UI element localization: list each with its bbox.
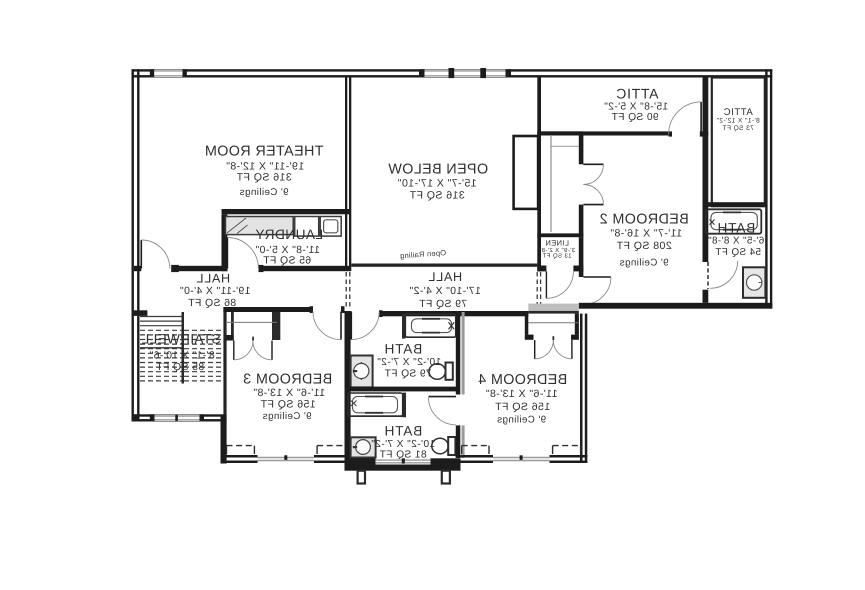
svg-text:9' Ceilings: 9' Ceilings bbox=[619, 258, 668, 269]
svg-text:13 SQ FT: 13 SQ FT bbox=[542, 253, 571, 260]
svg-text:HALL: HALL bbox=[428, 270, 462, 284]
svg-text:BEDROOM 3: BEDROOM 3 bbox=[243, 371, 332, 387]
svg-text:BATH: BATH bbox=[384, 424, 422, 439]
svg-text:54 SQ FT: 54 SQ FT bbox=[715, 247, 761, 258]
svg-text:THEATER ROOM: THEATER ROOM bbox=[205, 144, 324, 160]
svg-text:11'-6" X 13'-8": 11'-6" X 13'-8" bbox=[485, 388, 557, 400]
svg-text:OPEN BELOW: OPEN BELOW bbox=[388, 161, 488, 177]
svg-text:BATH: BATH bbox=[717, 220, 755, 235]
svg-text:ATTIC: ATTIC bbox=[616, 86, 659, 102]
svg-text:79 SQ FT: 79 SQ FT bbox=[384, 369, 431, 380]
svg-text:90 SQ FT: 90 SQ FT bbox=[611, 112, 658, 123]
svg-text:8'-1" X 10'-6": 8'-1" X 10'-6" bbox=[149, 350, 214, 361]
svg-text:156 SQ FT: 156 SQ FT bbox=[495, 401, 551, 413]
svg-text:HALL: HALL bbox=[196, 272, 230, 286]
svg-text:85 SQ FT: 85 SQ FT bbox=[156, 362, 204, 373]
svg-text:9' Ceilings: 9' Ceilings bbox=[497, 415, 546, 426]
svg-text:LINEN: LINEN bbox=[545, 239, 569, 248]
svg-text:9' Ceilings: 9' Ceilings bbox=[239, 187, 288, 198]
svg-text:LAUNDRY: LAUNDRY bbox=[255, 227, 323, 242]
svg-text:9' Ceilings: 9' Ceilings bbox=[262, 411, 311, 422]
svg-text:208 SQ FT: 208 SQ FT bbox=[616, 240, 672, 252]
svg-text:6'-5" X 8'-8": 6'-5" X 8'-8" bbox=[708, 236, 765, 247]
svg-text:19'-11" X 4'-0": 19'-11" X 4'-0" bbox=[180, 286, 251, 297]
svg-text:15'-8" X 5'-2": 15'-8" X 5'-2" bbox=[604, 102, 668, 113]
svg-text:316 SQ FT: 316 SQ FT bbox=[409, 190, 465, 202]
svg-text:15'-7" X 17'-10": 15'-7" X 17'-10" bbox=[397, 177, 476, 189]
svg-text:65 SQ FT: 65 SQ FT bbox=[263, 256, 311, 267]
svg-text:10'-2" X 7'-2": 10'-2" X 7'-2" bbox=[371, 439, 435, 450]
svg-text:156 SQ FT: 156 SQ FT bbox=[260, 398, 316, 410]
svg-text:Open Railing: Open Railing bbox=[400, 248, 447, 260]
svg-text:11'-6" X 13'-8": 11'-6" X 13'-8" bbox=[253, 387, 325, 399]
svg-text:73 SQ FT: 73 SQ FT bbox=[722, 125, 754, 132]
svg-text:11'-8" X 5'-0": 11'-8" X 5'-0" bbox=[255, 245, 320, 256]
svg-text:316 SQ FT: 316 SQ FT bbox=[236, 171, 292, 183]
svg-text:17'-10" X 4'-2": 17'-10" X 4'-2" bbox=[409, 286, 481, 297]
svg-text:BATH: BATH bbox=[384, 341, 422, 356]
svg-text:STAIRWELL: STAIRWELL bbox=[141, 331, 220, 346]
svg-text:11'-7" X 16'-8": 11'-7" X 16'-8" bbox=[610, 228, 682, 240]
svg-text:8'-1" X 12'-2": 8'-1" X 12'-2" bbox=[716, 117, 760, 124]
svg-text:10'-2" X 7'-2": 10'-2" X 7'-2" bbox=[377, 357, 441, 368]
svg-text:79 SQ FT: 79 SQ FT bbox=[419, 299, 467, 310]
svg-text:BEDROOM 4: BEDROOM 4 bbox=[478, 372, 567, 388]
svg-text:BEDROOM 2: BEDROOM 2 bbox=[599, 211, 688, 227]
